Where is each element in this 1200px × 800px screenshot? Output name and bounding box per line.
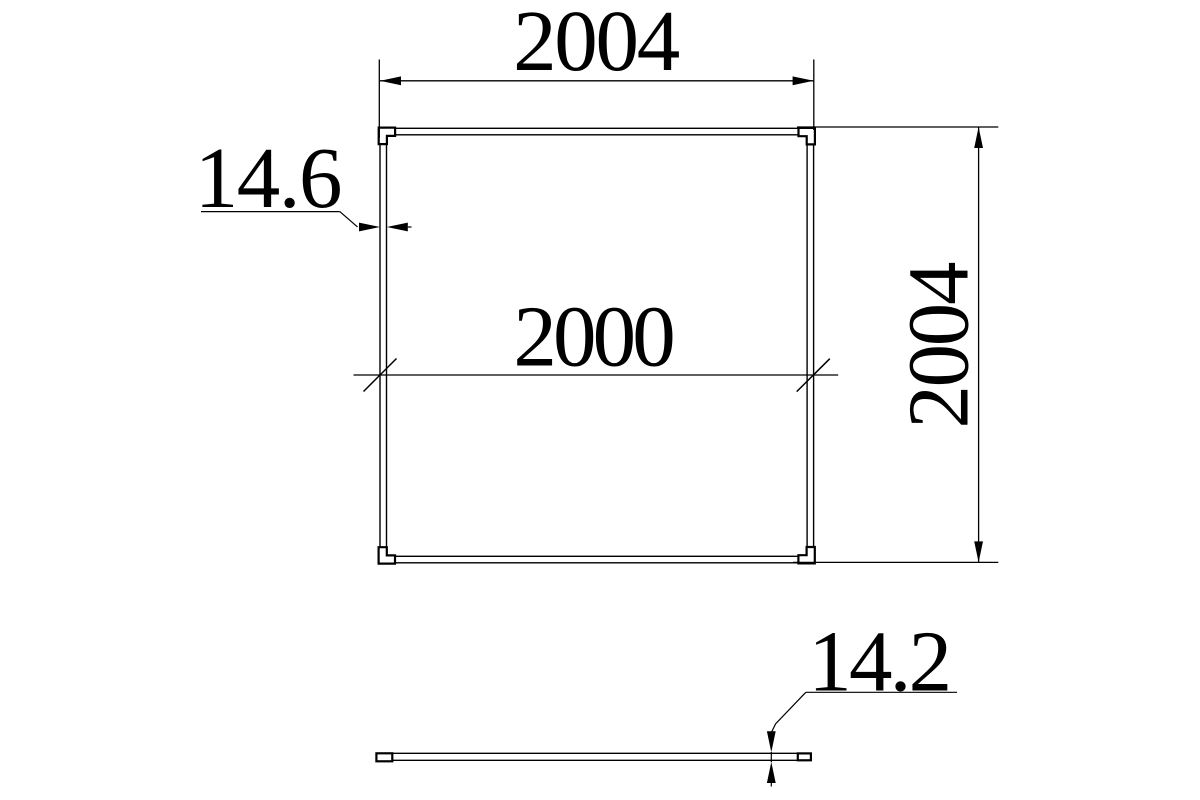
svg-text:2004: 2004 xyxy=(513,0,680,89)
svg-text:2004: 2004 xyxy=(889,262,986,429)
svg-text:2000: 2000 xyxy=(513,288,673,385)
svg-text:14.2: 14.2 xyxy=(808,613,949,710)
